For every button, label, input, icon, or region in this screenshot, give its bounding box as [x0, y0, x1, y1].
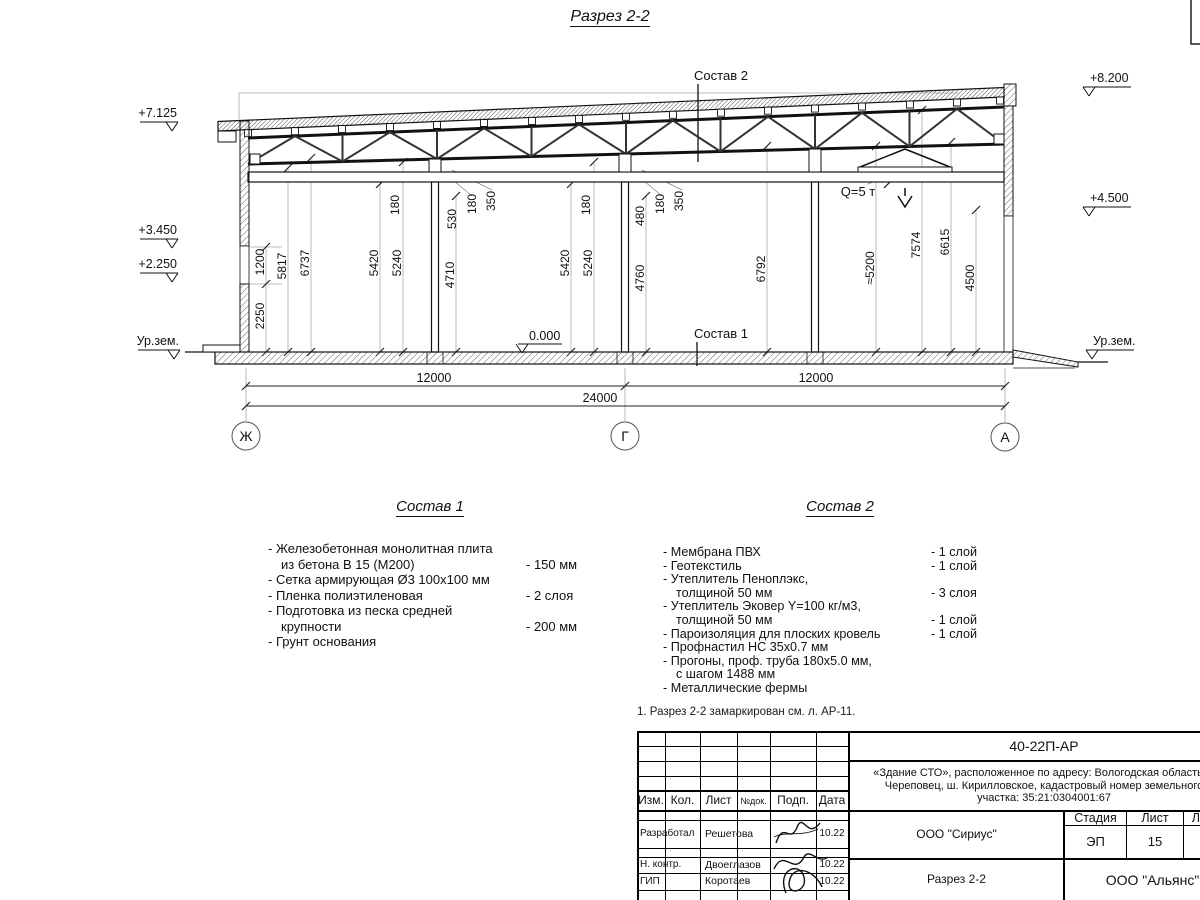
dim-label: 1200	[253, 248, 267, 275]
corbel	[429, 159, 441, 172]
elevation-label: +8.200	[1090, 71, 1129, 85]
dim-label: 2250	[253, 302, 267, 329]
axis-bubble-label: Ж	[240, 428, 253, 444]
tb-role: ГИП	[637, 873, 703, 890]
tb-header-list: Лист	[700, 792, 737, 810]
column	[622, 182, 629, 352]
tb-name: Решетова	[702, 820, 773, 848]
dim-label: 5240	[581, 249, 595, 276]
layer-item: толщиной 50 мм- 3 слоя	[663, 587, 1003, 601]
dim-label: 24000	[583, 391, 618, 405]
elevation-label: +2.250	[138, 257, 177, 271]
dim-label: 5420	[558, 249, 572, 276]
corner-frame	[1191, 0, 1200, 44]
signature	[770, 849, 832, 899]
dim-label: ≈5200	[863, 251, 877, 285]
tb-header-kol: Кол.	[665, 792, 700, 810]
dim-label: 4760	[633, 264, 647, 291]
dim-label: 180	[653, 194, 667, 214]
tb-stage-label: Стадия	[1065, 812, 1126, 825]
column	[432, 182, 439, 352]
tb-header-data: Дата	[816, 792, 848, 810]
column	[812, 182, 819, 352]
dim-label: 4710	[443, 261, 457, 288]
dim-label: 12000	[799, 371, 834, 385]
bearing	[994, 134, 1004, 144]
dim-label: 480	[633, 206, 647, 226]
drawing-sheet: Разрез 2-2	[0, 0, 1200, 900]
layer-item: - Подготовка из песка средней	[268, 603, 598, 619]
elevation-label: +3.450	[138, 223, 177, 237]
dim-label: 180	[579, 195, 593, 215]
elevation-label: +7.125	[138, 106, 177, 120]
layers-list-1-title: Состав 1	[360, 498, 500, 515]
wall-left-lower	[240, 284, 249, 352]
tb-sheet-label: Лист	[1127, 812, 1183, 825]
section-drawing: Ж Г А +7.125 +3.450 +2.250 Ур.зем. +8.20…	[0, 0, 1200, 475]
layer-item: - Грунт основания	[268, 634, 598, 650]
dim-label: 6615	[938, 228, 952, 255]
layer-item: из бетона В 15 (М200)- 150 мм	[268, 557, 598, 573]
tb-header-izm: Изм.	[637, 792, 665, 810]
layer-item: - Утеплитель Эковер Y=100 кг/м3,	[663, 600, 1003, 614]
corbel	[809, 149, 821, 172]
dim-label: 5240	[390, 249, 404, 276]
dim-label: 6737	[298, 249, 312, 276]
roof-fascia	[218, 131, 236, 142]
layer-item: - Геотекстиль- 1 слой	[663, 560, 1003, 574]
layer-ref-top: Состав 2	[694, 68, 748, 83]
elevation-label: +4.500	[1090, 191, 1129, 205]
axis-bubble-label: Г	[621, 428, 629, 444]
wall-left-upper	[240, 121, 249, 246]
dim-label: 180	[388, 195, 402, 215]
gate-opening	[1004, 216, 1013, 352]
dim-label: 7574	[909, 231, 923, 258]
dim-label: 350	[484, 191, 498, 211]
elevation-label: Ур.зем.	[1093, 334, 1135, 348]
layer-item: - Утеплитель Пеноплэкс,	[663, 573, 1003, 587]
dim-label: 350	[672, 191, 686, 211]
zero-level-label: 0.000	[529, 329, 560, 343]
layers-list-2-title: Состав 2	[770, 498, 910, 515]
signature	[772, 817, 824, 849]
dim-label: 4500	[963, 264, 977, 291]
layer-item: - Железобетонная монолитная плита	[268, 541, 598, 557]
layer-item: - Прогоны, проф. труба 180х5.0 мм,	[663, 655, 1003, 669]
tb-sheets-value: 16	[1184, 827, 1200, 857]
corbel	[619, 154, 631, 172]
layer-item: толщиной 50 мм- 1 слой	[663, 614, 1003, 628]
tb-header-podp: Подп.	[770, 792, 816, 810]
dim-label: 6792	[754, 255, 768, 282]
tb-role: Разработал	[637, 820, 703, 848]
tb-role: Н. контр.	[637, 857, 703, 873]
bearing	[250, 154, 260, 164]
axis-bubble-label: А	[1000, 429, 1010, 445]
layers-list-2: - Мембрана ПВХ- 1 слой - Геотекстиль- 1 …	[663, 546, 1003, 696]
hoist-label: Q=5 т	[841, 184, 876, 199]
elevation-label: Ур.зем.	[137, 334, 179, 348]
dimension-lines	[246, 386, 1005, 406]
tb-org2: ООО "Альянс"	[1065, 860, 1200, 900]
dim-label: 530	[445, 209, 459, 229]
parapet	[1004, 84, 1016, 106]
tb-sheets-label: Листов	[1184, 812, 1200, 825]
layer-item: с шагом 1488 мм	[663, 668, 1003, 682]
layer-item: - Мембрана ПВХ- 1 слой	[663, 546, 1003, 560]
ramp	[1013, 350, 1078, 367]
dim-label: 5420	[367, 249, 381, 276]
tb-org1: ООО "Сириус"	[850, 812, 1063, 858]
layer-item: - Пароизоляция для плоских кровель- 1 сл…	[663, 628, 1003, 642]
vertical-dimensions: 1200 2250 5817 6737 180 5420 5240 530 18…	[253, 191, 977, 330]
wall-right-upper	[1004, 106, 1013, 216]
layer-ref-floor: Состав 1	[694, 326, 748, 341]
sheet-note: 1. Разрез 2-2 замаркирован см. л. АР-11.	[637, 706, 1057, 718]
tb-name: Коротаев	[702, 873, 773, 890]
dim-label: 12000	[417, 371, 452, 385]
blind-area-left	[203, 345, 240, 352]
tb-project-name: «Здание СТО», расположенное по адресу: В…	[864, 762, 1200, 810]
layer-item: - Металлические фермы	[663, 682, 1003, 696]
tb-sheet-value: 15	[1127, 827, 1183, 857]
tb-header-doc: №док.	[737, 792, 770, 810]
axis-labels: Ж Г А	[240, 428, 1011, 445]
dim-label: 5817	[275, 252, 289, 279]
dim-label: 180	[465, 194, 479, 214]
tb-stage-value: ЭП	[1065, 827, 1126, 857]
window-opening	[240, 246, 249, 284]
title-block: Изм. Кол. Лист №док. Подп. Дата Разработ…	[637, 731, 1200, 900]
layers-list-1: - Железобетонная монолитная плита из бет…	[268, 541, 598, 650]
layer-item: - Профнастил НС 35х0.7 мм	[663, 641, 1003, 655]
tb-doc-number: 40-22П-АР	[848, 733, 1200, 760]
tb-name: Двоеглазов	[702, 857, 773, 873]
crane-beam	[248, 172, 1004, 182]
floor-slab	[215, 352, 1013, 364]
layer-item: - Пленка полиэтиленовая- 2 слоя	[268, 588, 598, 604]
layer-item: - Сетка армирующая Ø3 100х100 мм	[268, 572, 598, 588]
tb-drawing-name: Разрез 2-2	[850, 860, 1063, 900]
layer-item: крупности- 200 мм	[268, 619, 598, 635]
